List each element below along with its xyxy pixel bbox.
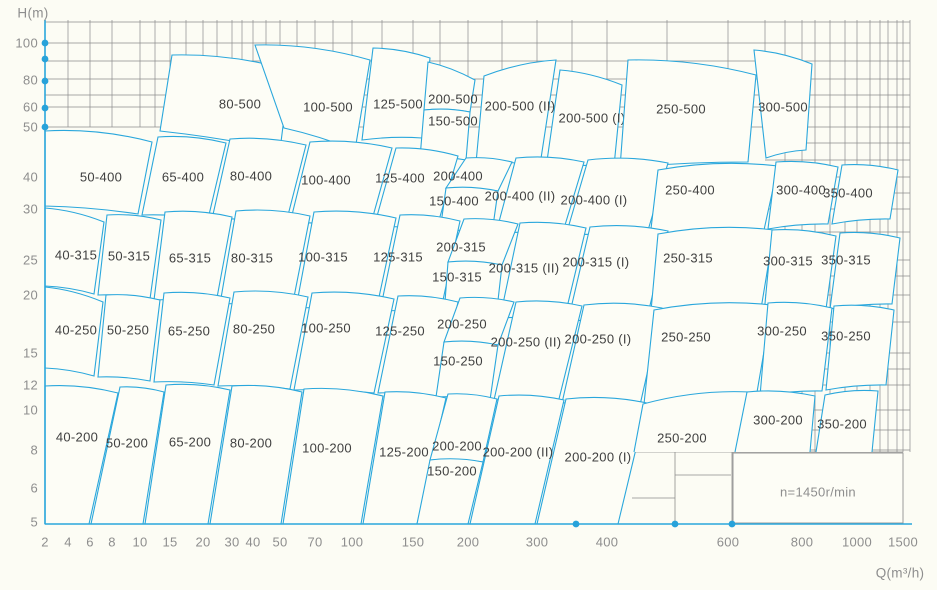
cell-label: 65-250 xyxy=(168,324,210,339)
cell-label: 350-400 xyxy=(823,186,873,201)
cell-label: 200-200 (I) xyxy=(565,450,632,465)
axis-dot xyxy=(42,40,49,47)
speed-annotation: n=1450r/min xyxy=(780,485,856,500)
cell-label: 65-315 xyxy=(169,251,211,266)
cell-label: 200-200 (II) xyxy=(483,445,554,460)
y-tick-label-30: 30 xyxy=(23,202,38,217)
cell-label: 65-200 xyxy=(169,435,211,450)
cell-label: 150-315 xyxy=(432,270,482,285)
cell-label: 200-315 xyxy=(436,240,486,255)
cell-350-250 xyxy=(826,305,894,390)
axis-dot xyxy=(42,105,49,112)
cell-label: 300-315 xyxy=(763,254,813,269)
x-tick-label-30: 30 xyxy=(224,535,239,550)
cell-label: 65-400 xyxy=(162,170,204,185)
cell-label: 40-315 xyxy=(55,248,97,263)
x-tick-label-6: 6 xyxy=(86,535,94,550)
cell-label: 200-200 xyxy=(432,439,482,454)
x-tick-label-40: 40 xyxy=(245,535,260,550)
cell-label: 250-500 xyxy=(656,102,706,117)
cell-label: 100-250 xyxy=(301,321,351,336)
cell-label: 200-400 (II) xyxy=(485,189,556,204)
x-tick-label-70: 70 xyxy=(307,535,322,550)
cell-label: 80-315 xyxy=(231,251,273,266)
x-tick-label-200: 200 xyxy=(457,535,480,550)
y-tick-label-12: 12 xyxy=(23,378,38,393)
y-tick-label-40: 40 xyxy=(23,170,38,185)
cell-label: 250-315 xyxy=(663,251,713,266)
x-axis-title: Q(m³/h) xyxy=(876,566,925,581)
y-tick-label-25: 25 xyxy=(23,253,38,268)
cell-label: 350-200 xyxy=(817,417,867,432)
cell-300-250 xyxy=(760,302,832,396)
cell-label: 50-400 xyxy=(80,170,122,185)
cell-label: 200-315 (II) xyxy=(489,261,560,276)
axis-dot xyxy=(42,56,49,63)
cell-label: 300-200 xyxy=(753,413,803,428)
axis-dot xyxy=(672,521,679,528)
cell-label: 250-400 xyxy=(665,183,715,198)
axis-dot xyxy=(573,521,580,528)
cell-label: 200-250 (I) xyxy=(565,332,632,347)
x-tick-label-15: 15 xyxy=(162,535,177,550)
cell-label: 50-315 xyxy=(108,249,150,264)
cell-300-315 xyxy=(764,230,836,314)
cell-label: 350-250 xyxy=(821,329,871,344)
x-tick-label-400: 400 xyxy=(596,535,619,550)
y-tick-label-5: 5 xyxy=(30,515,38,530)
x-tick-label-4: 4 xyxy=(64,535,72,550)
cell-label: 200-500 (I) xyxy=(559,111,626,126)
cell-label: 300-500 xyxy=(758,100,808,115)
y-tick-label-8: 8 xyxy=(30,443,38,458)
cell-125-500 xyxy=(362,48,430,140)
cell-label: 125-400 xyxy=(375,171,425,186)
x-tick-label-50: 50 xyxy=(272,535,287,550)
cell-label: 150-500 xyxy=(428,114,478,129)
cell-label: 200-250 xyxy=(437,317,487,332)
y-tick-label-6: 6 xyxy=(30,481,38,496)
cell-label: 125-500 xyxy=(373,97,423,112)
y-tick-label-50: 50 xyxy=(23,120,38,135)
cell-label: 80-200 xyxy=(230,436,272,451)
cell-label: 100-315 xyxy=(298,250,348,265)
cell-label: 150-250 xyxy=(433,354,483,369)
cell-label: 100-200 xyxy=(302,441,352,456)
x-tick-label-1000: 1000 xyxy=(842,535,872,550)
x-tick-label-8: 8 xyxy=(108,535,116,550)
y-tick-label-15: 15 xyxy=(23,346,38,361)
y-tick-label-80: 80 xyxy=(23,73,38,88)
cell-150-250 xyxy=(436,341,498,400)
cell-label: 125-250 xyxy=(375,324,425,339)
cell-label: 80-500 xyxy=(219,97,261,112)
chart-canvas: 80-500100-500125-500200-500150-500200-50… xyxy=(0,0,937,590)
x-tick-label-1500: 1500 xyxy=(888,535,918,550)
cell-label: 300-400 xyxy=(776,183,826,198)
cell-label: 100-500 xyxy=(303,100,353,115)
cell-label: 80-250 xyxy=(233,322,275,337)
cell-label: 200-400 xyxy=(433,169,483,184)
x-tick-label-600: 600 xyxy=(717,535,740,550)
cell-label: 40-250 xyxy=(55,323,97,338)
cell-label: 200-250 (II) xyxy=(491,335,562,350)
y-tick-label-20: 20 xyxy=(23,288,38,303)
cell-label: 200-500 xyxy=(428,92,478,107)
cell-label: 125-315 xyxy=(373,250,423,265)
cell-label: 200-400 (I) xyxy=(561,193,628,208)
cell-250-400 xyxy=(650,163,778,237)
x-tick-label-100: 100 xyxy=(341,535,364,550)
cell-250-250 xyxy=(644,303,772,404)
cell-label: 200-500 (II) xyxy=(485,99,556,114)
x-tick-label-300: 300 xyxy=(526,535,549,550)
cell-label: 200-315 (I) xyxy=(563,255,630,270)
x-tick-label-2: 2 xyxy=(41,535,49,550)
y-tick-label-60: 60 xyxy=(23,100,38,115)
cell-label: 250-200 xyxy=(657,431,707,446)
cell-label: 40-200 xyxy=(56,430,98,445)
x-tick-label-150: 150 xyxy=(402,535,425,550)
x-tick-label-20: 20 xyxy=(195,535,210,550)
y-axis-title: H(m) xyxy=(17,6,48,21)
cell-50-250 xyxy=(98,295,160,381)
axis-dot xyxy=(42,78,49,85)
x-tick-label-10: 10 xyxy=(132,535,147,550)
y-tick-label-100: 100 xyxy=(15,36,38,51)
axis-dot xyxy=(729,521,736,528)
cell-label: 100-400 xyxy=(301,173,351,188)
cell-350-315 xyxy=(830,232,900,309)
cell-label: 300-250 xyxy=(757,324,807,339)
y-tick-label-10: 10 xyxy=(23,403,38,418)
x-tick-label-800: 800 xyxy=(791,535,814,550)
cell-label: 150-200 xyxy=(427,464,477,479)
pump-selection-chart: 80-500100-500125-500200-500150-500200-50… xyxy=(0,0,937,590)
cell-label: 350-315 xyxy=(821,253,871,268)
cell-label: 50-250 xyxy=(107,323,149,338)
cell-label: 80-400 xyxy=(230,169,272,184)
cell-label: 125-200 xyxy=(379,445,429,460)
cell-label: 150-400 xyxy=(429,194,479,209)
cell-label: 250-250 xyxy=(661,330,711,345)
axis-dot xyxy=(42,124,49,131)
cell-label: 50-200 xyxy=(106,436,148,451)
